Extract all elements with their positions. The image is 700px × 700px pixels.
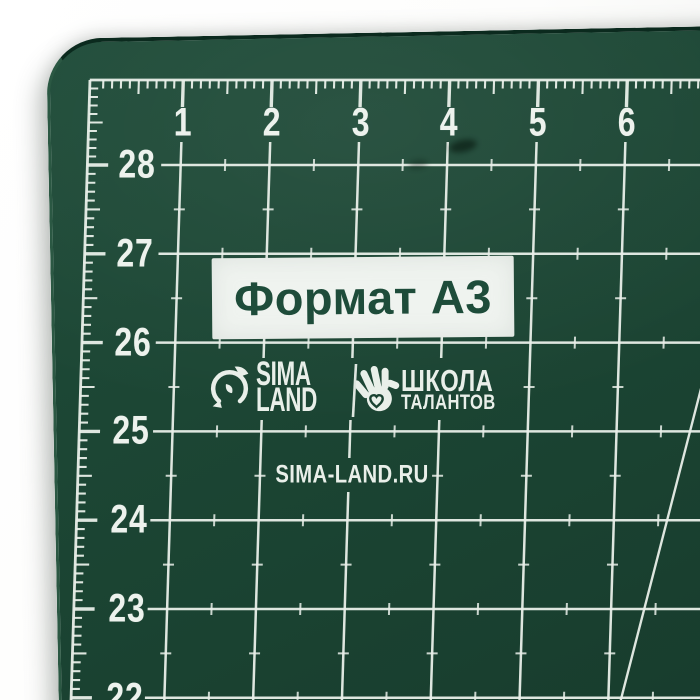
- format-label-text: Формат А3: [234, 269, 492, 326]
- top-ruler-number: 5: [529, 101, 548, 146]
- top-ruler-number: 6: [618, 101, 637, 146]
- talantov-line: ТАЛАНТОВ: [401, 393, 496, 413]
- top-ruler-number: 4: [440, 101, 459, 146]
- left-ruler-number: 24: [111, 498, 148, 543]
- left-ruler-number: 25: [113, 409, 150, 454]
- sima-land-wordmark: SIMA LAND: [256, 362, 317, 414]
- shkola-line: ШКОЛА: [401, 369, 494, 393]
- left-ruler-number: 27: [116, 231, 153, 276]
- format-label: Формат А3: [212, 256, 515, 340]
- left-ruler-number: 26: [114, 320, 151, 365]
- shkola-talantov-wordmark: ШКОЛА ТАЛАНТОВ: [401, 369, 521, 413]
- top-ruler-number: 3: [351, 101, 370, 146]
- hand-heart-icon: [356, 362, 402, 416]
- mat-content: Формат А3 SIMA LAND ШКОЛА: [0, 0, 700, 700]
- top-ruler-number: 1: [174, 101, 193, 146]
- left-ruler-number: 28: [118, 143, 155, 188]
- top-ruler-number: 2: [262, 101, 281, 146]
- left-ruler-number: 22: [107, 675, 144, 700]
- land-line: LAND: [256, 388, 317, 414]
- product-photo-scene: Формат А3 SIMA LAND ШКОЛА: [0, 0, 700, 700]
- dolphin-icon: [210, 361, 249, 412]
- left-ruler-number: 23: [109, 587, 146, 632]
- website-watermark: SIMA-LAND.RU: [275, 461, 428, 490]
- ink-smudge: [407, 159, 428, 171]
